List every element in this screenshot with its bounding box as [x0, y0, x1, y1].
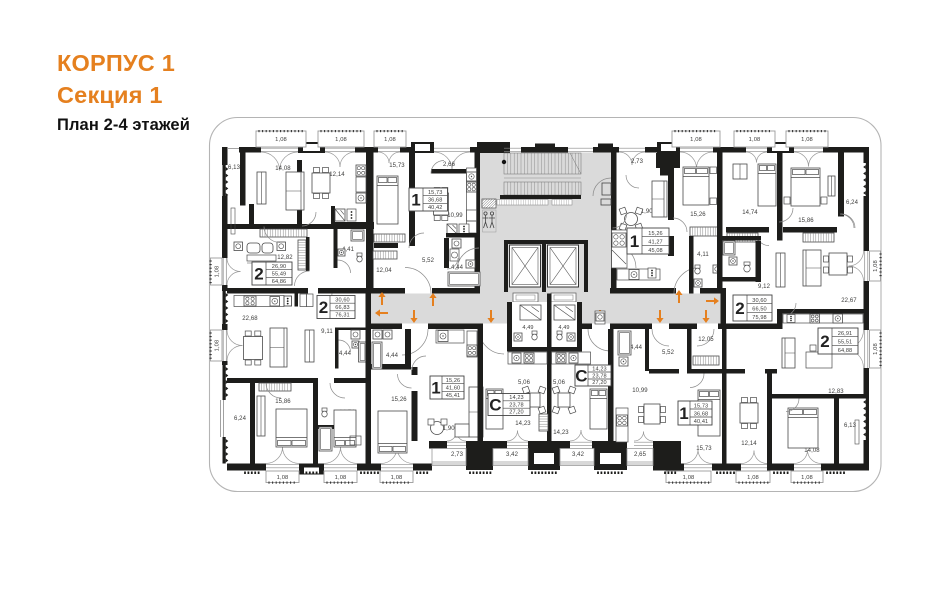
- svg-text:30,60: 30,60: [752, 298, 767, 304]
- svg-text:4,49: 4,49: [522, 325, 533, 331]
- svg-text:5,06: 5,06: [518, 380, 531, 386]
- svg-text:15,73: 15,73: [389, 163, 405, 169]
- svg-text:2: 2: [254, 265, 264, 284]
- svg-text:2,73: 2,73: [631, 159, 644, 165]
- svg-text:2: 2: [735, 299, 745, 318]
- svg-text:15,73: 15,73: [696, 446, 712, 452]
- svg-text:30,60: 30,60: [335, 298, 350, 304]
- svg-text:С: С: [489, 396, 501, 415]
- svg-text:27,20: 27,20: [592, 380, 607, 386]
- svg-text:5,52: 5,52: [662, 350, 675, 356]
- svg-text:1,08: 1,08: [749, 137, 761, 143]
- svg-text:12,05: 12,05: [698, 337, 714, 343]
- svg-text:23,78: 23,78: [509, 403, 524, 409]
- svg-text:2,73: 2,73: [451, 452, 464, 458]
- svg-text:1,08: 1,08: [214, 266, 220, 278]
- svg-text:6,24: 6,24: [846, 200, 859, 206]
- svg-text:КОРПУС 1: КОРПУС 1: [57, 50, 175, 76]
- svg-text:10,99: 10,99: [632, 388, 648, 394]
- svg-text:1,08: 1,08: [391, 475, 403, 481]
- svg-text:14,23: 14,23: [553, 430, 569, 436]
- svg-text:1,08: 1,08: [335, 137, 347, 143]
- svg-text:55,51: 55,51: [838, 340, 853, 346]
- svg-text:9,11: 9,11: [321, 329, 333, 335]
- svg-text:41,60: 41,60: [446, 386, 461, 392]
- svg-text:5,06: 5,06: [553, 380, 566, 386]
- svg-text:3,42: 3,42: [572, 452, 585, 458]
- svg-text:36,68: 36,68: [694, 411, 709, 417]
- svg-text:1,08: 1,08: [873, 343, 879, 355]
- svg-text:10,99: 10,99: [447, 213, 463, 219]
- svg-text:15,26: 15,26: [391, 397, 407, 403]
- svg-text:66,50: 66,50: [752, 307, 767, 313]
- svg-text:4,44: 4,44: [339, 351, 352, 357]
- svg-text:4,49: 4,49: [558, 325, 569, 331]
- svg-text:14,08: 14,08: [275, 166, 291, 172]
- svg-text:4,44: 4,44: [386, 353, 399, 359]
- svg-text:5,52: 5,52: [422, 258, 435, 264]
- svg-text:64,86: 64,86: [272, 279, 287, 285]
- svg-text:41,27: 41,27: [648, 240, 663, 246]
- svg-text:26,91: 26,91: [838, 331, 853, 337]
- svg-text:1: 1: [679, 404, 689, 423]
- svg-text:14,23: 14,23: [509, 395, 524, 401]
- svg-text:15,73: 15,73: [428, 190, 443, 196]
- svg-text:1,08: 1,08: [384, 137, 396, 143]
- svg-text:15,73: 15,73: [694, 403, 709, 409]
- svg-text:36,68: 36,68: [428, 198, 443, 204]
- svg-text:2,65: 2,65: [634, 452, 647, 458]
- svg-text:9,12: 9,12: [758, 284, 771, 290]
- svg-text:1,08: 1,08: [275, 137, 287, 143]
- svg-text:2,66: 2,66: [443, 162, 456, 168]
- svg-text:15,26: 15,26: [446, 378, 461, 384]
- svg-text:Секция 1: Секция 1: [57, 82, 163, 108]
- svg-text:15,86: 15,86: [798, 218, 814, 224]
- svg-text:1,08: 1,08: [335, 475, 347, 481]
- svg-text:1: 1: [431, 379, 441, 398]
- svg-text:76,31: 76,31: [335, 313, 350, 319]
- svg-text:26,90: 26,90: [272, 264, 287, 270]
- svg-text:12,14: 12,14: [329, 172, 345, 178]
- svg-text:23,78: 23,78: [592, 373, 607, 379]
- svg-text:1,08: 1,08: [801, 475, 813, 481]
- svg-text:15,26: 15,26: [648, 231, 663, 237]
- svg-text:14,74: 14,74: [742, 210, 758, 216]
- svg-text:4,44: 4,44: [630, 345, 643, 351]
- svg-text:22,67: 22,67: [841, 298, 857, 304]
- svg-text:2: 2: [820, 332, 830, 351]
- svg-text:1,08: 1,08: [277, 475, 289, 481]
- svg-text:22,68: 22,68: [242, 316, 258, 322]
- svg-text:75,98: 75,98: [752, 315, 767, 321]
- svg-text:45,41: 45,41: [446, 393, 461, 399]
- svg-text:14,08: 14,08: [804, 448, 820, 454]
- svg-text:1,08: 1,08: [873, 260, 879, 272]
- svg-text:15,26: 15,26: [690, 212, 706, 218]
- svg-text:12,14: 12,14: [741, 441, 757, 447]
- svg-text:1,08: 1,08: [801, 137, 813, 143]
- svg-text:6,24: 6,24: [234, 416, 247, 422]
- svg-text:12,04: 12,04: [376, 268, 392, 274]
- svg-text:14,23: 14,23: [515, 421, 531, 427]
- svg-text:4,11: 4,11: [697, 252, 709, 258]
- svg-text:1,08: 1,08: [214, 340, 220, 352]
- svg-text:План 2-4 этажей: План 2-4 этажей: [57, 116, 190, 134]
- svg-text:45,08: 45,08: [648, 248, 663, 254]
- svg-text:66,83: 66,83: [335, 305, 350, 311]
- svg-text:2: 2: [319, 298, 329, 317]
- svg-text:12,82: 12,82: [277, 255, 293, 261]
- svg-text:1,08: 1,08: [683, 475, 695, 481]
- svg-text:6,13: 6,13: [228, 165, 241, 171]
- svg-text:40,42: 40,42: [428, 205, 443, 211]
- svg-text:3,42: 3,42: [506, 452, 519, 458]
- svg-text:40,41: 40,41: [694, 419, 709, 425]
- svg-text:1,08: 1,08: [690, 137, 702, 143]
- svg-text:14,23: 14,23: [592, 366, 607, 372]
- svg-text:С: С: [575, 367, 587, 386]
- svg-text:1: 1: [411, 191, 421, 210]
- svg-text:1: 1: [630, 232, 640, 251]
- svg-text:4,44: 4,44: [451, 265, 464, 271]
- svg-text:1,08: 1,08: [747, 475, 759, 481]
- svg-text:64,88: 64,88: [838, 348, 853, 354]
- svg-text:27,20: 27,20: [509, 410, 524, 416]
- svg-text:55,49: 55,49: [272, 272, 287, 278]
- svg-text:15,86: 15,86: [275, 399, 291, 405]
